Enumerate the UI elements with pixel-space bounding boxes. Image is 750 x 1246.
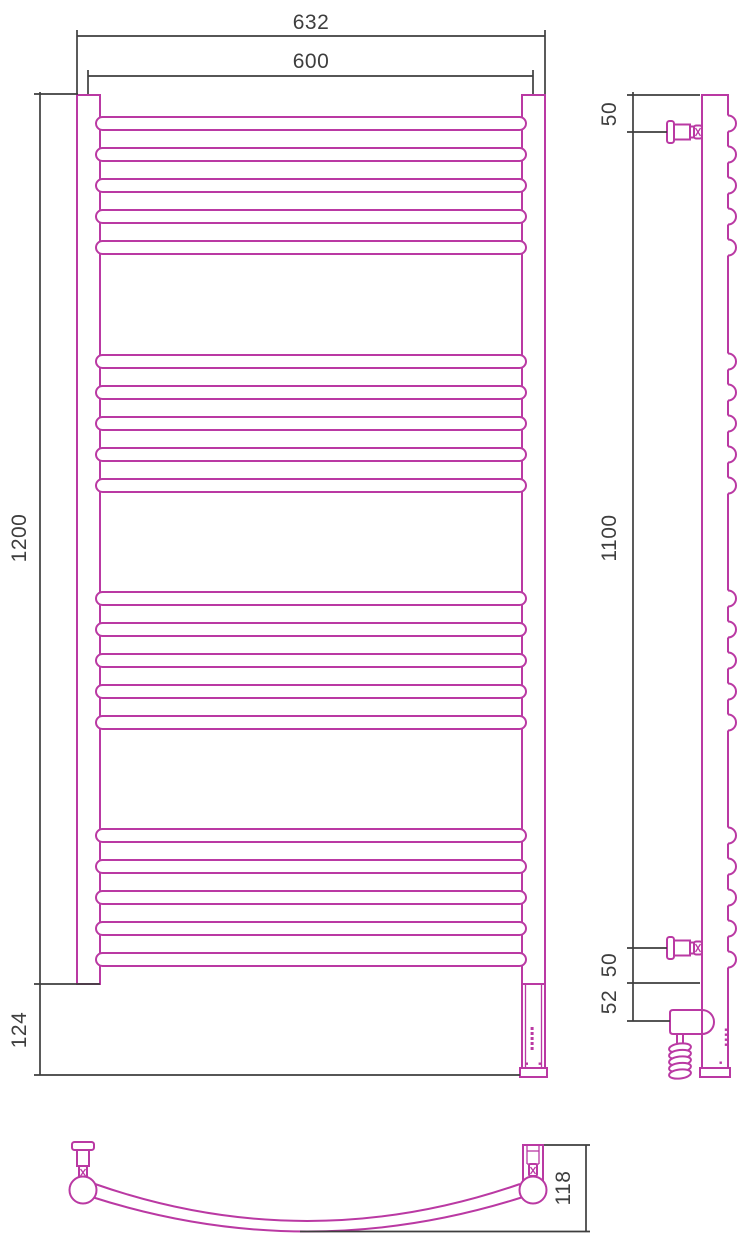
- towel-rail: [96, 685, 526, 698]
- dim-label-52: 52: [598, 990, 621, 1014]
- mount-bracket-right-icon: [523, 1145, 543, 1180]
- side-post-cap: [700, 1068, 730, 1077]
- towel-rail: [96, 386, 526, 399]
- post-cross-section: [520, 1177, 547, 1204]
- towel-rail: [96, 117, 526, 130]
- dim-label-124: 124: [8, 1012, 31, 1049]
- towel-rail: [96, 148, 526, 161]
- towel-rail: [96, 241, 526, 254]
- electric-unit: [520, 984, 547, 1077]
- towel-rail: [96, 179, 526, 192]
- towel-rail: [96, 623, 526, 636]
- towel-rail: [96, 479, 526, 492]
- technical-drawing-page: 632 600 1200 124 50 1100 50 52 118: [0, 0, 750, 1246]
- post-cross-section: [70, 1177, 97, 1204]
- towel-rail: [96, 210, 526, 223]
- side-post: [702, 95, 728, 1068]
- towel-rail: [96, 355, 526, 368]
- dim-label-632: 632: [293, 11, 330, 34]
- towel-rail: [96, 922, 526, 935]
- towel-rail: [96, 716, 526, 729]
- towel-rail: [96, 448, 526, 461]
- heating-element-icon: [670, 1010, 714, 1034]
- towel-rail: [96, 953, 526, 966]
- dim-label-600: 600: [293, 50, 330, 73]
- towel-rail: [96, 417, 526, 430]
- towel-rail: [96, 654, 526, 667]
- screw-dot-icon: [526, 1063, 528, 1065]
- dim-label-1100: 1100: [598, 514, 621, 561]
- screw-dot-icon: [539, 1063, 541, 1065]
- towel-rail: [96, 860, 526, 873]
- towel-rail: [96, 891, 526, 904]
- towel-rail: [96, 592, 526, 605]
- towel-rail-technical-drawing: 632 600 1200 124 50 1100 50 52 118: [0, 0, 750, 1246]
- left-post: [77, 95, 100, 984]
- dim-label-50-top: 50: [598, 102, 621, 126]
- dim-label-50-bottom: 50: [598, 953, 621, 977]
- dim-label-1200: 1200: [8, 514, 31, 563]
- dim-label-118: 118: [552, 1171, 575, 1206]
- screw-dot-icon: [720, 1062, 722, 1064]
- electric-unit-cap: [520, 1068, 547, 1077]
- towel-rail: [96, 829, 526, 842]
- right-post: [522, 95, 545, 984]
